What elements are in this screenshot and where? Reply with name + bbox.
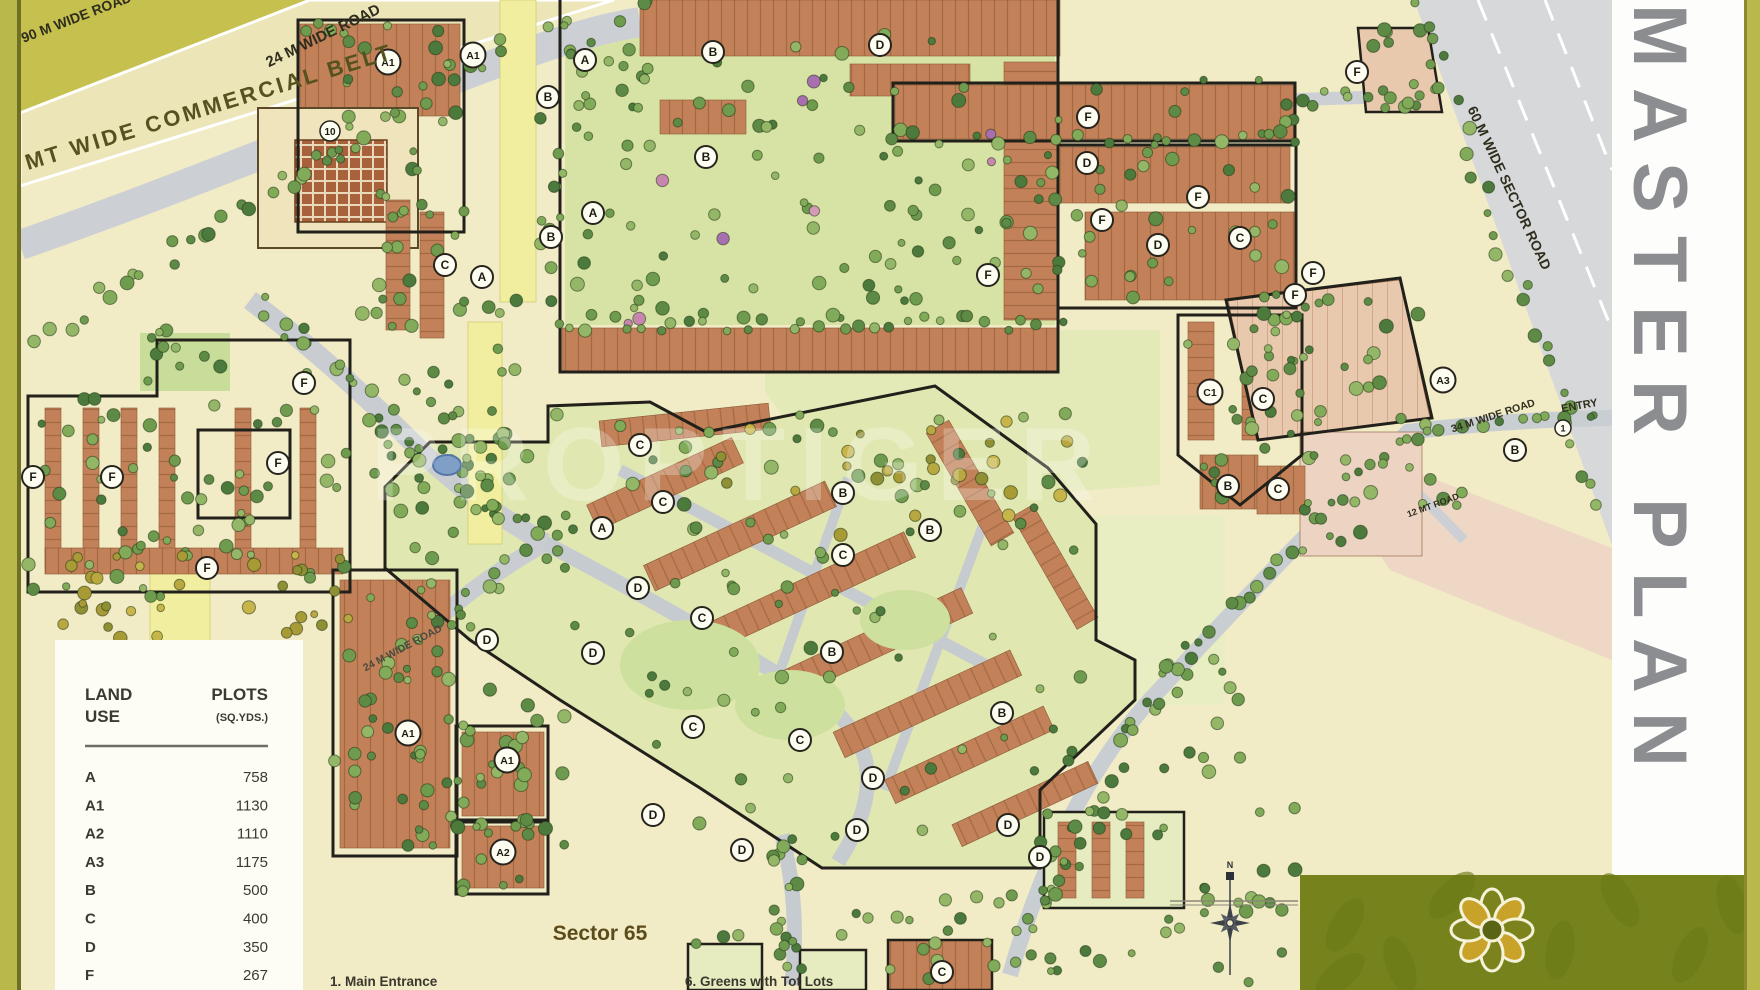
plot-marker-c: C bbox=[434, 254, 456, 276]
plot-marker-f: F bbox=[101, 466, 123, 488]
plot-marker-c: C bbox=[1252, 388, 1274, 410]
svg-text:D: D bbox=[1154, 238, 1163, 252]
title-letter: A bbox=[1617, 638, 1702, 693]
plot-marker-d: D bbox=[846, 819, 868, 841]
plot-marker-c: C bbox=[931, 961, 953, 983]
svg-text:1175: 1175 bbox=[236, 854, 268, 871]
svg-text:D: D bbox=[85, 939, 96, 956]
svg-text:B: B bbox=[926, 523, 935, 537]
plot-marker-b: B bbox=[832, 482, 854, 504]
master-plan-screenshot: PROPTIGER 10 A1A1ABDBBABCAFFFFFFFDFFDCFF… bbox=[0, 0, 1760, 990]
svg-text:F: F bbox=[274, 456, 281, 470]
svg-text:1130: 1130 bbox=[236, 797, 268, 814]
svg-text:C: C bbox=[1259, 392, 1268, 406]
svg-text:B: B bbox=[547, 230, 556, 244]
svg-text:B: B bbox=[828, 645, 837, 659]
svg-text:D: D bbox=[869, 771, 878, 785]
svg-text:A1: A1 bbox=[85, 797, 104, 814]
master-plan-title: MASTERPLAN bbox=[1617, 4, 1702, 767]
svg-text:C: C bbox=[839, 548, 848, 562]
svg-text:F: F bbox=[85, 967, 94, 984]
plot-marker-b: B bbox=[991, 702, 1013, 724]
plot-marker-f: F bbox=[1091, 209, 1113, 231]
svg-text:C: C bbox=[938, 965, 947, 979]
plot-marker-a1: A1 bbox=[396, 721, 421, 746]
plot-marker-f: F bbox=[1077, 106, 1099, 128]
title-letter: L bbox=[1617, 572, 1702, 618]
svg-text:D: D bbox=[634, 581, 643, 595]
map-note: 6. Greens with Tot Lots bbox=[685, 974, 833, 989]
community-number-badge: 10 bbox=[320, 121, 340, 141]
svg-text:C: C bbox=[441, 258, 450, 272]
sector-title: Sector 65 bbox=[553, 922, 648, 945]
plot-marker-f: F bbox=[1302, 262, 1324, 284]
plot-marker-b: B bbox=[702, 41, 724, 63]
plot-marker-b: B bbox=[919, 519, 941, 541]
svg-text:F: F bbox=[203, 561, 210, 575]
plot-marker-b: B bbox=[1217, 475, 1239, 497]
plot-marker-d: D bbox=[627, 577, 649, 599]
plot-marker-c: C bbox=[629, 434, 651, 456]
svg-text:B: B bbox=[85, 882, 96, 899]
plot-marker-a1: A1 bbox=[461, 43, 486, 68]
svg-text:A1: A1 bbox=[401, 728, 415, 740]
plot-marker-f: F bbox=[267, 452, 289, 474]
svg-text:F: F bbox=[108, 470, 115, 484]
plot-marker-c: C bbox=[1267, 478, 1289, 500]
plot-marker-d: D bbox=[1076, 152, 1098, 174]
svg-text:C: C bbox=[689, 720, 698, 734]
svg-text:C: C bbox=[85, 911, 96, 928]
svg-text:(SQ.YDS.): (SQ.YDS.) bbox=[216, 712, 268, 724]
title-letter: A bbox=[1617, 88, 1702, 143]
title-letter: R bbox=[1617, 380, 1702, 435]
plot-marker-d: D bbox=[862, 767, 884, 789]
svg-text:F: F bbox=[1353, 65, 1360, 79]
legend-col2-header: PLOTS bbox=[211, 685, 268, 704]
svg-text:B: B bbox=[709, 45, 718, 59]
plot-marker-d: D bbox=[642, 804, 664, 826]
svg-text:A: A bbox=[598, 521, 607, 535]
svg-text:D: D bbox=[853, 823, 862, 837]
svg-text:C: C bbox=[796, 733, 805, 747]
svg-text:D: D bbox=[1036, 850, 1045, 864]
watermark-text: PROPTIGER bbox=[371, 407, 1110, 523]
svg-text:F: F bbox=[984, 268, 991, 282]
svg-text:267: 267 bbox=[243, 967, 268, 984]
plot-marker-c: C bbox=[1229, 227, 1251, 249]
svg-text:A3: A3 bbox=[85, 854, 104, 871]
plot-marker-a3: A3 bbox=[1431, 368, 1456, 393]
svg-text:F: F bbox=[1309, 266, 1316, 280]
svg-text:D: D bbox=[483, 633, 492, 647]
plot-marker-b: B bbox=[537, 86, 559, 108]
svg-text:D: D bbox=[649, 808, 658, 822]
map-note: 1. Main Entrance bbox=[330, 974, 438, 989]
plot-marker-c: C bbox=[832, 544, 854, 566]
svg-text:USE: USE bbox=[85, 707, 120, 726]
svg-text:C1: C1 bbox=[1203, 387, 1217, 399]
svg-text:A: A bbox=[589, 206, 598, 220]
entry-number-badge: 1 bbox=[1555, 420, 1571, 436]
title-letter: P bbox=[1617, 498, 1702, 549]
svg-text:500: 500 bbox=[243, 882, 268, 899]
plot-marker-d: D bbox=[731, 839, 753, 861]
svg-text:400: 400 bbox=[243, 911, 268, 928]
plot-marker-d: D bbox=[997, 814, 1019, 836]
svg-text:A: A bbox=[85, 769, 96, 786]
plot-marker-d: D bbox=[1147, 234, 1169, 256]
title-strip: MASTERPLAN bbox=[1612, 0, 1746, 875]
svg-text:B: B bbox=[1511, 443, 1520, 457]
legend-panel: LAND USE PLOTS (SQ.YDS.) A758A11130A2111… bbox=[55, 640, 303, 990]
svg-text:758: 758 bbox=[243, 769, 268, 786]
svg-text:D: D bbox=[876, 38, 885, 52]
svg-text:F: F bbox=[29, 470, 36, 484]
plot-marker-f: F bbox=[1284, 284, 1306, 306]
plot-marker-f: F bbox=[1346, 61, 1368, 83]
compass-north-label: N bbox=[1227, 860, 1234, 870]
svg-text:1110: 1110 bbox=[237, 826, 268, 843]
svg-text:F: F bbox=[300, 376, 307, 390]
master-plan-map: PROPTIGER 10 A1A1ABDBBABCAFFFFFFFDFFDCFF… bbox=[0, 0, 1760, 990]
plot-marker-b: B bbox=[821, 641, 843, 663]
svg-text:F: F bbox=[1291, 288, 1298, 302]
plot-marker-c1: C1 bbox=[1198, 380, 1223, 405]
plot-marker-d: D bbox=[1029, 846, 1051, 868]
plot-marker-f: F bbox=[1187, 186, 1209, 208]
svg-text:A2: A2 bbox=[85, 826, 104, 843]
svg-text:F: F bbox=[1098, 213, 1105, 227]
plot-marker-a: A bbox=[582, 202, 604, 224]
svg-text:10: 10 bbox=[324, 127, 336, 138]
plot-marker-f: F bbox=[977, 264, 999, 286]
svg-text:D: D bbox=[738, 843, 747, 857]
svg-text:C: C bbox=[659, 495, 668, 509]
svg-text:A3: A3 bbox=[1436, 375, 1450, 387]
svg-text:A1: A1 bbox=[466, 50, 480, 62]
svg-text:A2: A2 bbox=[496, 847, 510, 859]
logo-panel bbox=[1300, 864, 1760, 990]
svg-text:B: B bbox=[544, 90, 553, 104]
svg-text:C: C bbox=[1236, 231, 1245, 245]
plot-marker-c: C bbox=[652, 491, 674, 513]
title-letter: E bbox=[1617, 306, 1702, 357]
svg-text:C: C bbox=[698, 611, 707, 625]
plot-marker-d: D bbox=[869, 34, 891, 56]
svg-text:C: C bbox=[636, 438, 645, 452]
title-letter: S bbox=[1617, 162, 1702, 213]
svg-text:B: B bbox=[839, 486, 848, 500]
svg-text:D: D bbox=[589, 646, 598, 660]
svg-text:F: F bbox=[1194, 190, 1201, 204]
svg-text:D: D bbox=[1083, 156, 1092, 170]
svg-text:1: 1 bbox=[1560, 424, 1565, 434]
yellow-strip-a bbox=[500, 0, 536, 302]
legend-col1-header: LAND bbox=[85, 685, 132, 704]
title-letter: T bbox=[1617, 236, 1702, 282]
plot-marker-b: B bbox=[540, 226, 562, 248]
plot-marker-f: F bbox=[196, 557, 218, 579]
plot-marker-a: A bbox=[591, 517, 613, 539]
svg-text:350: 350 bbox=[243, 939, 268, 956]
plot-marker-d: D bbox=[476, 629, 498, 651]
flower-logo-icon bbox=[1451, 889, 1533, 971]
plot-marker-f: F bbox=[293, 372, 315, 394]
plot-marker-a: A bbox=[574, 49, 596, 71]
svg-text:A: A bbox=[478, 270, 487, 284]
plot-marker-f: F bbox=[22, 466, 44, 488]
plot-marker-a1: A1 bbox=[495, 748, 520, 773]
plot-marker-a2: A2 bbox=[491, 840, 516, 865]
svg-text:D: D bbox=[1004, 818, 1013, 832]
title-letter: N bbox=[1617, 712, 1702, 767]
title-letter: M bbox=[1617, 4, 1702, 67]
plot-marker-b: B bbox=[695, 146, 717, 168]
plot-marker-d: D bbox=[582, 642, 604, 664]
svg-text:B: B bbox=[1224, 479, 1233, 493]
plot-marker-c: C bbox=[789, 729, 811, 751]
plot-marker-c: C bbox=[691, 607, 713, 629]
svg-text:F: F bbox=[1084, 110, 1091, 124]
plot-marker-a: A bbox=[471, 266, 493, 288]
svg-text:A1: A1 bbox=[500, 755, 514, 767]
plot-marker-c: C bbox=[682, 716, 704, 738]
svg-text:B: B bbox=[998, 706, 1007, 720]
plot-marker-b: B bbox=[1504, 439, 1526, 461]
svg-text:C: C bbox=[1274, 482, 1283, 496]
svg-text:B: B bbox=[702, 150, 711, 164]
svg-text:A: A bbox=[581, 53, 590, 67]
